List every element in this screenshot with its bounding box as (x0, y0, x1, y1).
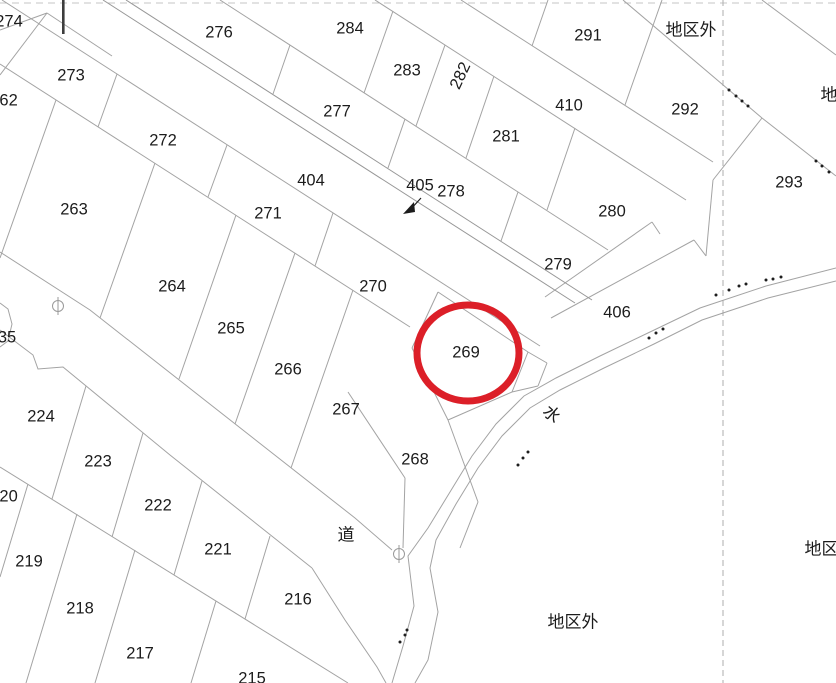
boundary-dot (772, 278, 775, 281)
parcel-boundary-line (179, 215, 236, 379)
parcel-boundary-line (291, 290, 353, 468)
parcel-boundary-line (713, 118, 762, 180)
parcel-boundary-line (762, 0, 836, 55)
boundary-dot (728, 89, 731, 92)
parcel-boundary-line (538, 363, 547, 386)
parcel-label-282: 282 (446, 59, 474, 92)
parcel-boundary-line (245, 536, 270, 619)
boundary-dot (765, 279, 768, 282)
boundary-dot (655, 332, 658, 335)
boundary-dot (747, 105, 750, 108)
parcel-boundary-line (625, 0, 662, 105)
parcel-label-284: 284 (336, 19, 364, 37)
parcel-label-292: 292 (671, 100, 699, 118)
map-polyline (392, 268, 836, 683)
parcel-boundary-line (460, 502, 478, 548)
parcel-label-220: 220 (0, 487, 18, 505)
parcel-boundary-line (2, 0, 540, 346)
boundary-dot (745, 283, 748, 286)
parcel-label-277: 277 (323, 102, 351, 120)
parcel-boundary-line (375, 0, 686, 200)
parcel-boundary-line (532, 0, 548, 46)
parcel-label-283: 283 (393, 61, 421, 79)
parcel-label-410: 410 (555, 96, 583, 114)
parcel-label-262: 262 (0, 91, 18, 109)
map-label-地区外: 地区外 (821, 85, 836, 104)
parcel-boundary-line (762, 118, 836, 176)
parcel-boundary-line (403, 478, 405, 548)
parcel-boundary-line (512, 386, 538, 392)
parcel-boundary-line (191, 601, 216, 683)
parcel-boundary-line (112, 433, 143, 537)
parcel-label-222: 222 (144, 496, 172, 514)
boundary-dot (738, 285, 741, 288)
map-label-水: 水 (539, 401, 564, 426)
map-canvas: 274276284283282291地区外273地区外2924102622722… (0, 0, 836, 683)
road-lines (103, 0, 592, 303)
parcel-label-276: 276 (205, 23, 233, 41)
parcel-boundary-line (235, 253, 295, 424)
parcel-label-278: 278 (437, 182, 465, 200)
parcel-label-274: 274 (0, 12, 23, 30)
parcel-boundary-line (652, 222, 660, 234)
parcel-boundary-line (364, 11, 393, 93)
boundary-dot (741, 100, 744, 103)
boundary-dot (399, 641, 402, 644)
parcel-label-291: 291 (574, 26, 602, 44)
boundary-dot (522, 457, 525, 460)
parcel-label-221: 221 (204, 540, 232, 558)
boundary-dots (399, 89, 831, 644)
parcel-label-267: 267 (332, 400, 360, 418)
parcel-boundary-line (448, 420, 478, 502)
parcel-label-217: 217 (126, 644, 154, 662)
parcel-boundary-line (528, 352, 547, 363)
parcel-boundary-line (208, 145, 227, 197)
parcel-boundary-line (547, 128, 575, 210)
parcel-label-224: 224 (27, 407, 55, 425)
boundary-dot (404, 634, 407, 637)
parcel-boundary-line (98, 74, 117, 127)
parcel-label-218: 218 (66, 599, 94, 617)
parcel-label-272: 272 (149, 131, 177, 149)
parcel-label-265: 265 (217, 319, 245, 337)
parcel-label-270: 270 (359, 277, 387, 295)
label-405-arrow (403, 198, 421, 214)
parcel-label-219: 219 (15, 552, 43, 570)
boundary-dot (828, 171, 831, 174)
parcel-boundary-line (52, 386, 86, 499)
parcel-boundary-line (0, 100, 56, 258)
parcel-boundary-line (694, 240, 706, 256)
map-label-道: 道 (338, 525, 355, 544)
parcel-label-263: 263 (60, 200, 88, 218)
boundary-dot (715, 294, 718, 297)
boundary-dot (527, 451, 530, 454)
parcel-label-35: 35 (0, 328, 16, 346)
parcel-label-293: 293 (775, 173, 803, 191)
boundary-dot (648, 337, 651, 340)
parcel-label-268: 268 (401, 450, 429, 468)
map-label-地区外: 地区外 (805, 539, 836, 558)
cadastral-map: 274276284283282291地区外273地区外2924102622722… (0, 0, 836, 683)
parcel-label-271: 271 (254, 204, 282, 222)
parcel-label-279: 279 (544, 255, 572, 273)
map-polyline (312, 568, 386, 683)
boundary-dot (815, 160, 818, 163)
parcel-label-273: 273 (57, 66, 85, 84)
parcel-label-405: 405 (406, 176, 434, 194)
boundary-dot (662, 328, 665, 331)
survey-tick-mark (62, 0, 65, 34)
boundary-dot (517, 464, 520, 467)
boundary-dot (406, 629, 409, 632)
parcel-label-280: 280 (598, 202, 626, 220)
parcel-label-406: 406 (603, 303, 631, 321)
boundary-dot (780, 276, 783, 279)
parcel-boundary-line (100, 163, 155, 318)
parcel-label-269: 269 (452, 343, 480, 361)
parcel-label-404: 404 (297, 171, 325, 189)
parcel-label-223: 223 (84, 452, 112, 470)
parcel-label-264: 264 (158, 277, 186, 295)
parcel-label-216: 216 (284, 590, 312, 608)
map-label-地区外: 地区外 (666, 20, 717, 39)
parcel-boundary-line (95, 550, 135, 683)
boundary-dot (728, 289, 731, 292)
parcel-label-266: 266 (274, 360, 302, 378)
parcel-boundary-line (315, 213, 333, 266)
parcel-label-281: 281 (492, 127, 520, 145)
boundary-dot (735, 95, 738, 98)
map-label-地区外: 地区外 (548, 612, 599, 631)
parcel-boundary-line (273, 45, 290, 94)
boundary-dot (821, 165, 824, 168)
parcel-label-215: 215 (238, 669, 266, 683)
parcel-boundary-line (416, 45, 445, 126)
parcel-boundary-line (174, 481, 202, 575)
parcel-boundary-line (501, 192, 518, 241)
parcel-boundary-line (466, 76, 494, 158)
map-polyline (415, 281, 836, 683)
parcel-boundary-line (388, 119, 405, 168)
map-polyline (0, 330, 312, 568)
parcel-boundary-line (706, 180, 713, 256)
